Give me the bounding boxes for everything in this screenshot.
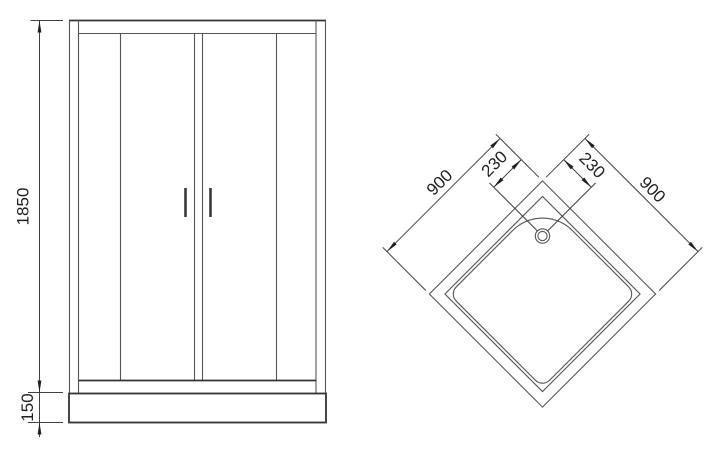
shower-enclosure-dimension-drawing: 1850 150 900 900 bbox=[0, 0, 720, 467]
dimension-label-drain-left: 230 bbox=[478, 147, 511, 180]
dimension-label-height: 1850 bbox=[14, 188, 33, 226]
door-handle-right bbox=[209, 188, 212, 217]
front-elevation-dimensions: 1850 150 bbox=[14, 21, 64, 438]
dimension-label-drain-right: 230 bbox=[575, 149, 608, 182]
tray-inner-rim bbox=[445, 196, 640, 391]
extension-line-right-corner bbox=[659, 247, 702, 290]
dimension-label-tray-height: 150 bbox=[18, 393, 37, 421]
tray-outer-edge bbox=[429, 181, 655, 407]
door-handle-left bbox=[184, 188, 187, 217]
dimension-line-900-right bbox=[585, 138, 698, 251]
technical-drawing-canvas: 1850 150 900 900 bbox=[0, 0, 720, 467]
dimension-label-side-right: 900 bbox=[636, 173, 669, 206]
extension-line-left-corner bbox=[383, 247, 426, 290]
tray-base-front bbox=[69, 394, 326, 423]
tray-plan-view: 900 900 230 230 bbox=[372, 66, 713, 407]
front-elevation-view bbox=[69, 21, 326, 423]
dimension-line-900-left bbox=[387, 138, 500, 251]
dimension-label-side-left: 900 bbox=[423, 166, 456, 199]
